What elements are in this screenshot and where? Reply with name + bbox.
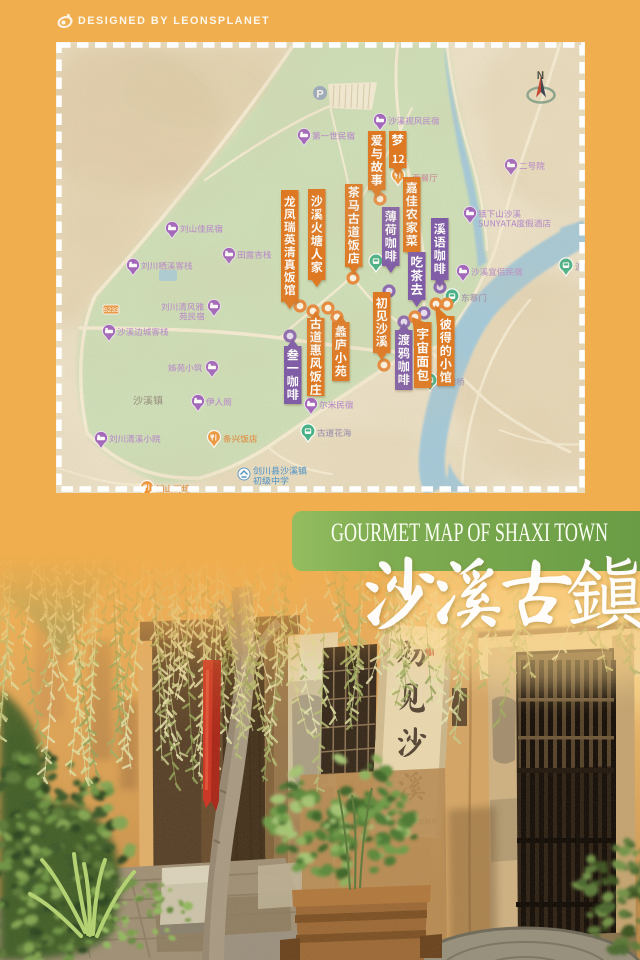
svg-text:GOURMET MAP OF SHAXI TOWN: GOURMET MAP OF SHAXI TOWN [331, 518, 608, 547]
